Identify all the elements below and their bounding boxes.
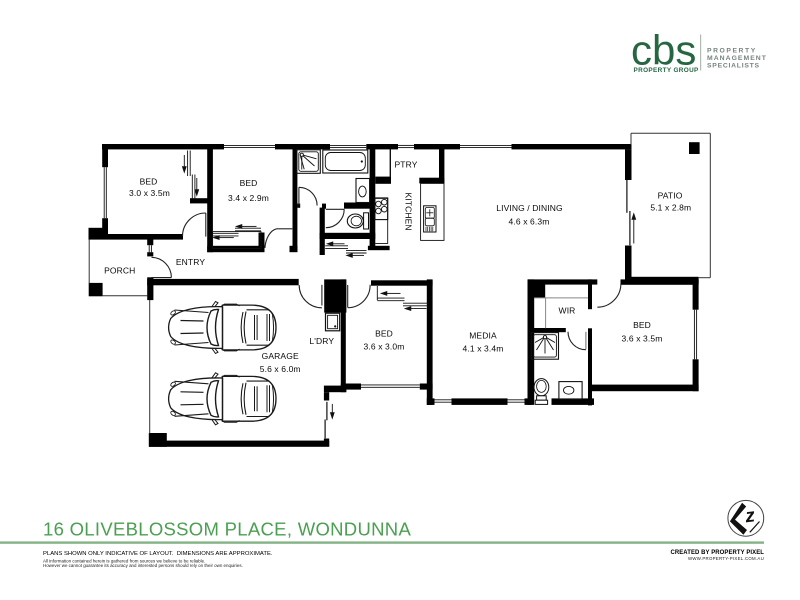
svg-text:BED: BED [375, 329, 393, 339]
svg-text:WIR: WIR [559, 306, 576, 316]
svg-text:3.0 x 3.5m: 3.0 x 3.5m [129, 188, 170, 198]
svg-text:3.6 x 3.5m: 3.6 x 3.5m [622, 333, 663, 343]
svg-text:PROPERTY: PROPERTY [707, 47, 757, 54]
svg-text:GARAGE: GARAGE [262, 351, 299, 361]
svg-text:4.1 x 3.4m: 4.1 x 3.4m [463, 343, 504, 353]
svg-text:KITCHEN: KITCHEN [403, 193, 413, 231]
svg-text:PROPERTY GROUP: PROPERTY GROUP [634, 67, 700, 74]
svg-text:PTRY: PTRY [395, 160, 418, 170]
svg-text:16 OLIVEBLOSSOM PLACE, WONDUNN: 16 OLIVEBLOSSOM PLACE, WONDUNNA [43, 519, 411, 540]
svg-text:5.6 x 6.0m: 5.6 x 6.0m [260, 364, 301, 374]
svg-text:3.4 x 2.9m: 3.4 x 2.9m [228, 193, 269, 203]
svg-text:However we cannot guarantee it: However we cannot guarantee its accuracy… [43, 563, 243, 568]
svg-text:PLANS SHOWN ONLY INDICATIVE OF: PLANS SHOWN ONLY INDICATIVE OF LAYOUT. D… [43, 551, 273, 557]
svg-text:5.1 x 2.8m: 5.1 x 2.8m [650, 203, 691, 213]
svg-text:3.6 x 3.0m: 3.6 x 3.0m [364, 342, 405, 352]
svg-text:L'DRY: L'DRY [309, 336, 334, 346]
svg-text:LIVING / DINING: LIVING / DINING [496, 203, 563, 213]
svg-text:WWW.PROPERTY-PIXEL.COM.AU: WWW.PROPERTY-PIXEL.COM.AU [688, 556, 764, 561]
svg-text:4.6 x 6.3m: 4.6 x 6.3m [509, 217, 550, 227]
svg-text:ENTRY: ENTRY [176, 257, 205, 267]
svg-text:BED: BED [633, 320, 651, 330]
svg-text:MANAGEMENT: MANAGEMENT [707, 55, 767, 62]
svg-text:CREATED BY PROPERTY PIXEL: CREATED BY PROPERTY PIXEL [670, 550, 764, 556]
svg-text:MEDIA: MEDIA [469, 331, 497, 341]
svg-text:BED: BED [240, 178, 258, 188]
svg-text:PATIO: PATIO [658, 191, 683, 201]
svg-text:PORCH: PORCH [104, 266, 135, 276]
svg-text:SPECIALISTS: SPECIALISTS [707, 63, 760, 70]
svg-text:BED: BED [140, 177, 158, 187]
